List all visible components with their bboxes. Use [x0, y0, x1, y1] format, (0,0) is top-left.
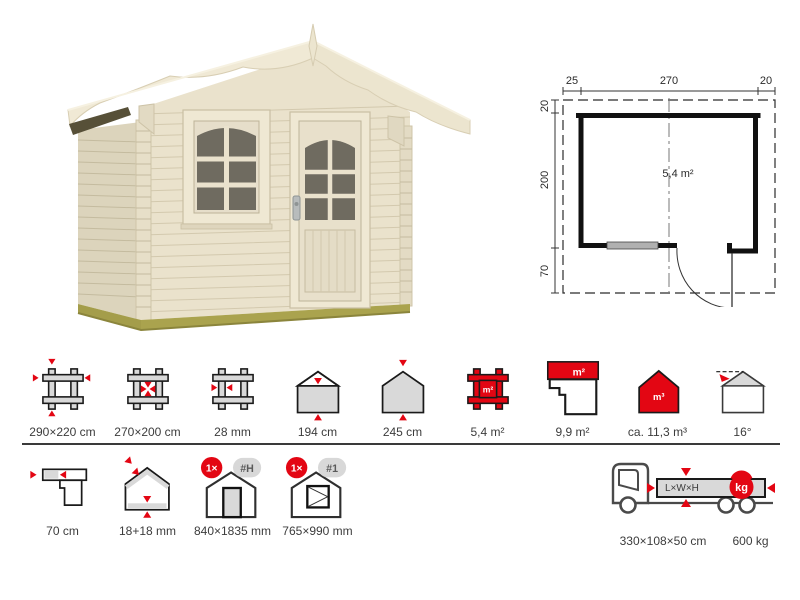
product-spec-sheet: 25 270 20 20 200 70 5,4 m² 290×220 cm 27…: [0, 0, 800, 600]
door-size-icon: #H 1×: [198, 455, 268, 521]
spec-roof-floor-thickness: 18+18 mm: [105, 455, 190, 538]
spec-label: 9,9 m²: [530, 425, 615, 439]
spec-label: 245 cm: [360, 425, 445, 439]
count-badge-label: 1×: [205, 464, 217, 475]
spec-label: 16°: [700, 425, 785, 439]
roof-area-icon: m²: [538, 356, 608, 422]
dim-left-bottom: 70: [540, 265, 551, 277]
dim-left-top: 20: [540, 100, 551, 112]
roof-pitch-icon: [708, 356, 778, 422]
cabin-corner-logs: [136, 120, 151, 322]
door-handle: [293, 196, 300, 220]
spec-label: 28 mm: [190, 425, 275, 439]
spec-label: 194 cm: [275, 425, 360, 439]
ref-badge-label: #1: [326, 463, 338, 475]
external-dimensions-icon: [28, 356, 98, 422]
door-glyph: [223, 488, 240, 517]
shipping-info: L×W×H kg 330×108×50 cm 600 kg: [593, 450, 793, 560]
cabin-door: [290, 112, 370, 308]
spec-internal-dimensions: 270×200 cm: [105, 356, 190, 439]
truck-wheel: [740, 498, 755, 513]
wall-thickness-icon: [198, 356, 268, 422]
truck-wheel: [719, 498, 734, 513]
internal-dimensions-icon: [113, 356, 183, 422]
plan-walls: [576, 113, 761, 254]
row-divider: [22, 443, 780, 445]
spec-window-size: #1 1× 765×990 mm: [275, 455, 360, 538]
cargo-label: L×W×H: [665, 483, 699, 494]
spec-label: 18+18 mm: [105, 524, 190, 538]
spec-side-wall-height: 194 cm: [275, 356, 360, 439]
floor-area-icon: m²: [453, 356, 523, 422]
volume-unit: m³: [653, 391, 665, 402]
window-size-icon: #1 1×: [283, 455, 353, 521]
spec-roof-pitch: 16°: [700, 356, 785, 439]
spec-label: 290×220 cm: [20, 425, 105, 439]
plan-dim-left: 20 200 70: [540, 100, 559, 293]
ref-badge-label: #H: [240, 463, 254, 475]
spec-roof-area: m² 9,9 m²: [530, 356, 615, 439]
ridge-height-icon: [368, 356, 438, 422]
plan-door-swing: [677, 248, 732, 307]
spec-label: 270×200 cm: [105, 425, 190, 439]
spec-ridge-height: 245 cm: [360, 356, 445, 439]
plan-dim-top: 25 270 20: [563, 75, 775, 95]
weight-unit-label: kg: [735, 482, 748, 494]
count-badge-label: 1×: [290, 464, 302, 475]
plan-window: [607, 242, 658, 249]
dim-top-left: 25: [566, 75, 578, 87]
side-wall-height-icon: [283, 356, 353, 422]
spec-wall-thickness: 28 mm: [190, 356, 275, 439]
shipping-weight: 600 kg: [723, 534, 778, 548]
spec-door-size: #H 1× 840×1835 mm: [190, 455, 275, 538]
floor-plan: 25 270 20 20 200 70 5,4 m²: [540, 52, 795, 307]
spec-label: 70 cm: [20, 524, 105, 538]
dim-top-right: 20: [760, 75, 772, 87]
roof-area-unit: m²: [572, 367, 585, 378]
dim-top-center: 270: [660, 75, 678, 87]
window-glyph: [307, 486, 328, 507]
volume-icon: m³: [623, 356, 693, 422]
roof-overhang-icon: [28, 455, 98, 521]
cabin-window: [181, 110, 272, 229]
cabin-corner-logs-right: [400, 126, 412, 306]
spec-label: 765×990 mm: [275, 524, 360, 538]
spec-label: ca. 11,3 m³: [615, 425, 700, 439]
truck-wheel: [621, 498, 636, 513]
floor-area-unit: m²: [482, 385, 493, 395]
dim-left-middle: 200: [540, 171, 551, 189]
spec-roof-overhang: 70 cm: [20, 455, 105, 538]
spec-volume: m³ ca. 11,3 m³: [615, 356, 700, 439]
spec-label: 5,4 m²: [445, 425, 530, 439]
shipping-dimensions: 330×108×50 cm: [598, 534, 728, 548]
truck-icon: L×W×H kg: [593, 450, 785, 516]
plan-area-label: 5,4 m²: [662, 168, 694, 180]
roof-floor-thickness-icon: [113, 455, 183, 521]
spec-external-dimensions: 290×220 cm: [20, 356, 105, 439]
cabin-render: [38, 8, 518, 353]
spec-floor-area: m² 5,4 m²: [445, 356, 530, 439]
spec-label: 840×1835 mm: [190, 524, 275, 538]
